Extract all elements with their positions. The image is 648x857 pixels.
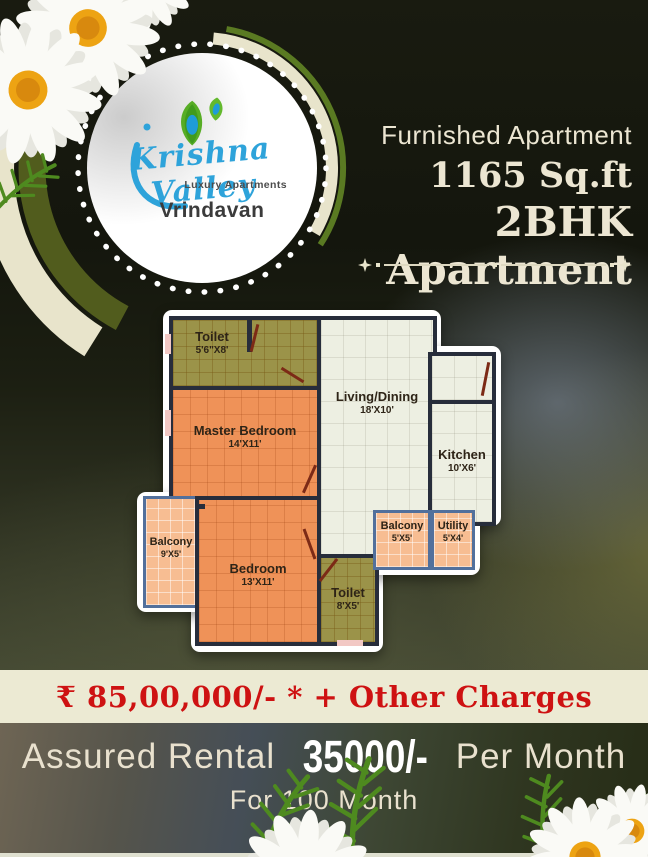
headline-area: 1165 Sq.ft bbox=[312, 155, 632, 196]
room-label: Utility 5'X4' bbox=[431, 520, 475, 543]
room-label: Master Bedroom 14'X11' bbox=[169, 424, 321, 450]
dot-ornament bbox=[493, 263, 497, 267]
room-label: Living/Dining 18'X10' bbox=[317, 390, 437, 416]
room-label: Balcony 5'X5' bbox=[373, 520, 431, 543]
dot-ornament bbox=[376, 263, 380, 267]
dot-ornament bbox=[610, 263, 614, 267]
room-label: Balcony 9'X5' bbox=[143, 536, 199, 559]
wall-segment bbox=[195, 504, 205, 509]
headline-bhk: 2BHK Apartment bbox=[312, 198, 632, 294]
diamond-ornament-icon bbox=[618, 258, 632, 272]
room-label: Toilet 8'X5' bbox=[317, 586, 379, 612]
window-mark bbox=[337, 640, 363, 646]
floor-plan: Toilet 5'6"X8' Master Bedroom 14'X11' Li… bbox=[145, 308, 505, 653]
daisy-flowers-bottom bbox=[0, 707, 648, 857]
ornament-divider bbox=[358, 258, 632, 272]
apartment-flyer: Krishna Valley Luxury Apartments Vrindav… bbox=[0, 0, 648, 857]
headline-furnished: Furnished Apartment bbox=[312, 120, 632, 151]
divider-line bbox=[384, 264, 489, 266]
room-label: Kitchen 10'X6' bbox=[428, 448, 496, 474]
room-label: Toilet 5'6"X8' bbox=[173, 330, 251, 356]
window-mark bbox=[165, 334, 171, 354]
diamond-ornament-icon bbox=[358, 258, 372, 272]
room-label: Bedroom 13'X11' bbox=[195, 562, 321, 588]
daisy-flowers-top-left bbox=[0, 0, 220, 220]
divider-line bbox=[501, 264, 606, 266]
